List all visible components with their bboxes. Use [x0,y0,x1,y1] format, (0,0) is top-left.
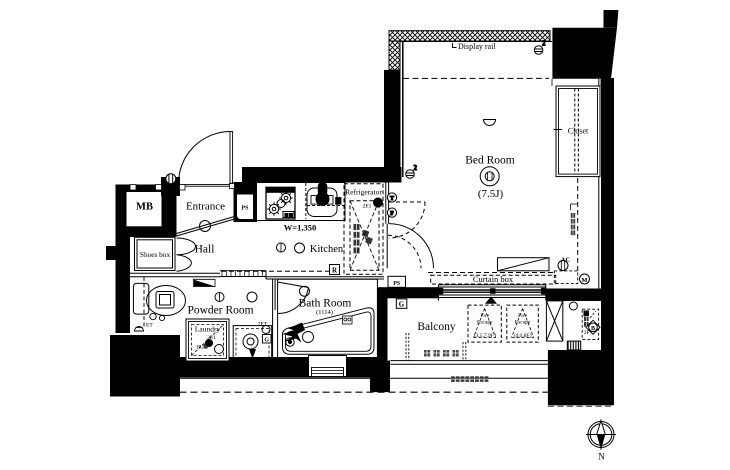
svg-text:2E1: 2E1 [207,335,216,341]
svg-text:G: G [264,338,269,344]
svg-text:Shoes box: Shoes box [140,250,171,259]
svg-text:Kitchen: Kitchen [310,244,344,255]
svg-text:Powder Room: Powder Room [187,305,253,317]
svg-text:M: M [581,277,587,284]
svg-text:G: G [399,300,405,308]
svg-text:2E1: 2E1 [363,204,372,210]
svg-text:Escape: Escape [515,320,531,326]
svg-text:N: N [598,452,605,462]
svg-text:Escape: Escape [477,320,493,326]
svg-text:MB: MB [136,202,153,213]
svg-text:2: 2 [414,164,418,172]
svg-text:T: T [390,196,394,202]
svg-text:Hall: Hall [195,244,215,256]
svg-text:Display rail: Display rail [458,42,496,51]
svg-text:Entrance: Entrance [186,201,225,213]
svg-text:(3,5,7,9F): (3,5,7,9F) [474,332,496,339]
svg-text:ET: ET [146,323,153,329]
svg-text:Fire: Fire [518,313,527,319]
svg-text:Bath Room: Bath Room [299,298,352,310]
svg-text:Fire: Fire [480,313,489,319]
svg-text:Balcony: Balcony [417,321,456,333]
svg-text:AC: AC [561,257,571,264]
svg-text:F: F [390,211,394,217]
svg-text:2F: 2F [584,330,590,336]
svg-text:Closet: Closet [568,127,589,136]
svg-text:(7.5J): (7.5J) [478,188,504,200]
svg-text:Refrigerator: Refrigerator [345,188,382,197]
svg-text:Bed Room: Bed Room [465,155,515,167]
svg-text:(1114): (1114) [316,309,333,316]
svg-text:W=1,350: W=1,350 [284,223,316,233]
svg-text:Curtain box: Curtain box [473,274,514,284]
svg-text:HU: HU [196,346,204,351]
svg-text:Laundry: Laundry [195,325,221,334]
svg-text:PS: PS [393,281,401,287]
svg-text:2ET: 2ET [258,322,268,328]
svg-text:PS: PS [241,206,249,212]
svg-text:(4,6,8F): (4,6,8F) [514,332,532,339]
svg-text:B: B [591,326,595,332]
svg-text:2: 2 [542,40,546,48]
